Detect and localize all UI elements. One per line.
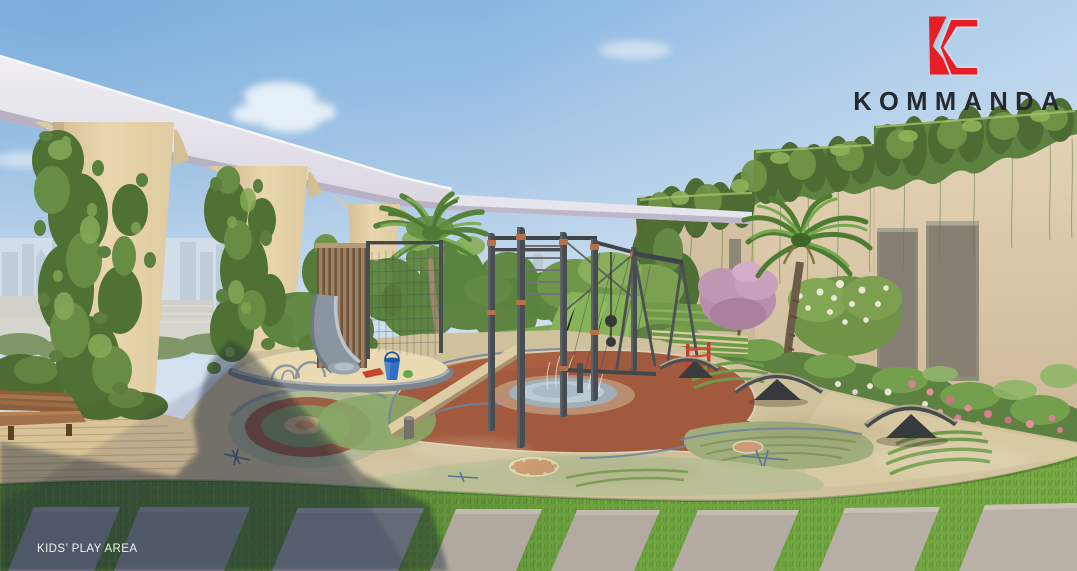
svg-text:KIDS’ PLAY AREA: KIDS’ PLAY AREA — [37, 543, 137, 555]
svg-text:KOMMANDA: KOMMANDA — [853, 88, 1067, 116]
